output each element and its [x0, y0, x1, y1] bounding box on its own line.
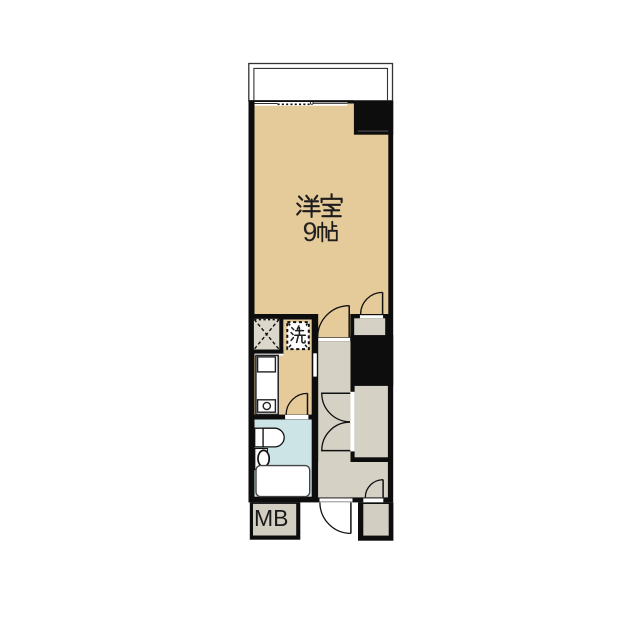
svg-text:MB: MB — [254, 505, 289, 531]
svg-text:9: 9 — [303, 217, 318, 247]
